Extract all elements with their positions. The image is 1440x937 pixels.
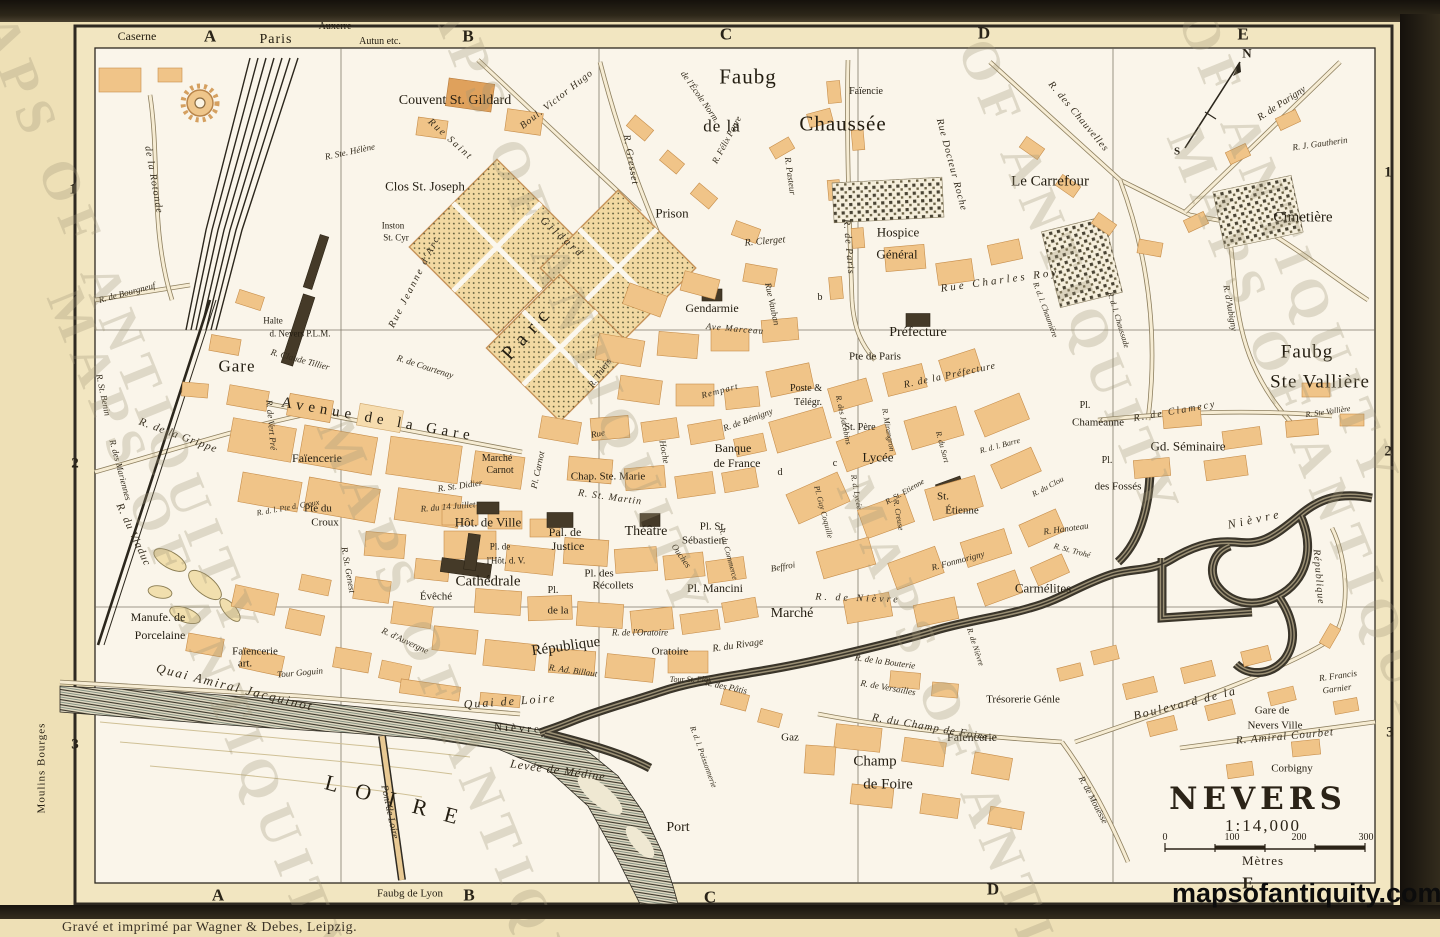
map-label: Carmélites <box>1015 582 1071 595</box>
map-label: Couvent St. Gildard <box>399 94 511 108</box>
map-label: Port <box>666 821 689 835</box>
map-label: 1 <box>1384 166 1392 181</box>
map-label: Étienne <box>945 506 979 517</box>
map-label: Cimetière <box>1273 211 1332 226</box>
map-label: Gaz <box>781 733 799 744</box>
map-label: Faubg <box>1281 343 1334 362</box>
map-label: Sébastien <box>682 536 724 547</box>
map-label: S <box>1174 147 1180 158</box>
map-label: Marché <box>482 454 513 464</box>
map-label: Faubg <box>719 67 777 88</box>
map-label: St. Cyr <box>383 234 409 243</box>
map-label: de France <box>714 457 761 469</box>
map-label: Faïencerie <box>947 731 997 743</box>
map-label: Gare de <box>1255 706 1290 717</box>
map-label: l'Hôt. d. V. <box>487 557 526 566</box>
map-label: Gd. Séminaire <box>1150 440 1225 453</box>
map-label: Général <box>876 248 917 261</box>
map-label: Manufe. de <box>131 611 186 623</box>
map-label: Hospice <box>877 226 920 239</box>
map-label: B <box>463 887 474 904</box>
map-label: Marché <box>771 607 814 621</box>
map-label: Pl. de <box>490 543 511 552</box>
map-label: Poste & <box>790 384 822 394</box>
map-label: Auxerre <box>319 22 352 32</box>
map-label: R. de l'Oratoire <box>612 629 668 638</box>
map-label: B <box>462 28 473 45</box>
map-label: Moulins Bourges <box>37 723 48 814</box>
map-label: N <box>1242 47 1251 60</box>
map-label: Télégr. <box>794 398 822 408</box>
map-label: Caserne <box>118 30 157 42</box>
map-label: Le Carrefour <box>1011 175 1089 190</box>
map-label: 3 <box>1386 726 1394 741</box>
map-label: Pl. <box>1080 401 1091 411</box>
map-label: 2 <box>1384 445 1392 460</box>
map-label: Inston <box>382 222 405 231</box>
scale-unit-label: Mètres <box>1242 853 1284 869</box>
map-label: Paris <box>260 33 293 47</box>
map-label: b <box>818 293 823 303</box>
map-label: de la <box>547 606 568 617</box>
map-label: Justice <box>552 540 585 552</box>
map-label: Faïencerie <box>292 452 342 464</box>
map-label: Halte <box>263 317 283 326</box>
map-label: Champ <box>853 755 896 770</box>
map-label: Banque <box>715 442 752 454</box>
map-label: Corbigny <box>1271 764 1313 775</box>
map-label: d <box>778 468 783 478</box>
map-label: Chap. Ste. Marie <box>571 472 646 483</box>
map-label: C <box>720 26 732 43</box>
photo-edge-right <box>1400 14 1440 907</box>
map-label: C <box>704 889 716 906</box>
map-label: 1 <box>69 183 77 198</box>
map-label: E <box>1237 26 1248 43</box>
website-watermark: mapsofantiquity.com <box>1172 878 1440 909</box>
scanned-map-photo: ABCDEABCDE112233CaserneAuxerreParisAutun… <box>0 0 1440 937</box>
map-label: Porcelaine <box>135 629 186 641</box>
map-label: Faubg de Lyon <box>377 889 443 900</box>
map-label: de Foire <box>863 778 913 793</box>
map-label: Chaussée <box>799 114 886 135</box>
map-label: Faïencerie <box>232 647 278 658</box>
scale-tick-label: 200 <box>1292 832 1307 843</box>
map-label: Pl. <box>1102 456 1113 466</box>
map-label: Pte de Paris <box>849 352 901 363</box>
map-label: 3 <box>71 738 79 753</box>
map-label: Gendarmie <box>685 302 738 314</box>
map-label: Pl. Mancini <box>687 582 743 594</box>
map-label: Récollets <box>593 581 634 592</box>
scale-tick-label: 0 <box>1163 832 1168 843</box>
scale-tick-label: 100 <box>1225 832 1240 843</box>
printer-caption: Gravé et imprimé par Wagner & Debes, Lei… <box>62 920 357 936</box>
map-label: Trésorerie Génle <box>986 695 1060 706</box>
map-label: c <box>833 459 837 469</box>
map-label: Évêché <box>420 592 452 603</box>
map-label: 2 <box>71 457 79 472</box>
map-label: A <box>212 887 224 904</box>
map-label: A <box>204 28 216 45</box>
map-label: Carnot <box>486 466 513 476</box>
map-label: Prison <box>655 207 688 220</box>
map-label: Clos St. Joseph <box>385 180 465 193</box>
map-label: Pte du <box>304 504 332 515</box>
map-label: D <box>978 25 990 42</box>
scale-tick-label: 300 <box>1359 832 1374 843</box>
map-label: Pl. des <box>584 569 613 580</box>
map-label: Ste Vallière <box>1270 373 1370 392</box>
map-label: Théâtre <box>625 525 668 539</box>
map-label: D <box>987 881 999 898</box>
map-label: Faïencie <box>849 87 883 97</box>
map-label: Gare <box>218 358 255 375</box>
photo-edge-top <box>0 0 1440 22</box>
map-label: de la <box>703 118 741 135</box>
map-label: Hôt. de Ville <box>455 516 522 529</box>
map-label: Chaméanne <box>1072 418 1124 429</box>
map-label: Préfecture <box>889 326 947 340</box>
map-title: NEVERS <box>1169 781 1347 817</box>
map-label: St. <box>937 492 949 503</box>
map-label: Pal. de <box>549 526 582 538</box>
map-label: des Fossés <box>1095 482 1142 493</box>
map-label: art. <box>238 659 252 670</box>
map-label: Autun etc. <box>359 37 401 47</box>
map-label: d. Nevers P.L.M. <box>270 330 331 339</box>
map-label: Pl. <box>548 586 559 596</box>
map-label: Croux <box>311 518 339 529</box>
map-label: Oratoire <box>652 647 689 658</box>
map-label: Lycée <box>862 451 893 464</box>
map-label: Cathédrale <box>456 575 521 590</box>
